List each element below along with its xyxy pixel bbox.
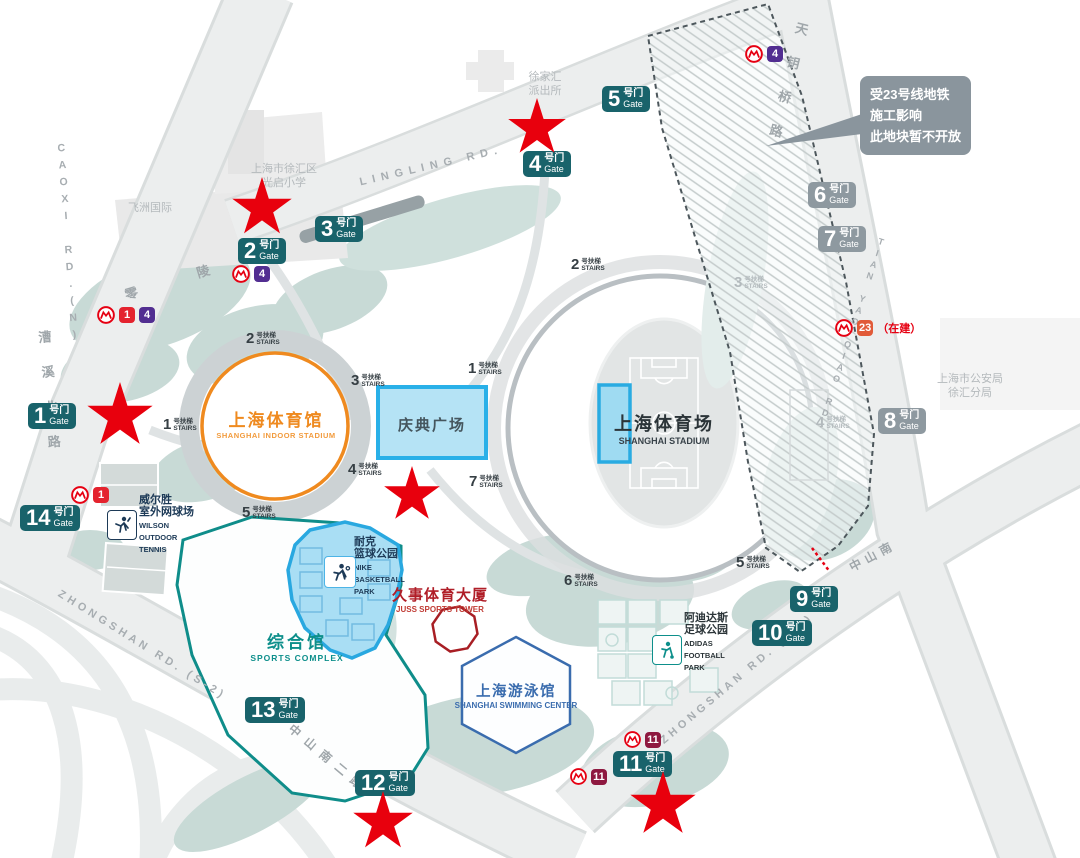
label-juss-tower: 久事体育大厦 JUSS SPORTS TOWER xyxy=(392,584,488,614)
label-complex: 综合馆 SPORTS COMPLEX xyxy=(250,628,343,663)
metro-logo-icon xyxy=(745,45,763,63)
gate-12-badge[interactable]: 12号门Gate xyxy=(355,770,415,796)
stairs-2-indoor: 2号扶梯STAIRS xyxy=(246,330,280,347)
stadium-map: CAOXI RD.(N) 漕溪北路 LINGLING RD. 零陵路 天钥桥路 … xyxy=(0,0,1080,858)
stairs-3-faint: 3号扶梯STAIRS xyxy=(734,274,768,291)
callout-pointer xyxy=(764,108,864,152)
metro-cluster-caoxi: 14 xyxy=(97,306,155,324)
metro-cluster-gate11-b: 11 xyxy=(570,768,607,785)
label-indoor-stadium: 上海体育馆 SHANGHAI INDOOR STADIUM xyxy=(216,406,335,440)
gate-7-badge[interactable]: 7号门Gate xyxy=(818,226,866,252)
metro-logo-icon xyxy=(97,306,115,324)
stairs-4-faint: 4号扶梯STAIRS xyxy=(816,414,850,431)
gate-2-badge[interactable]: 2号门Gate xyxy=(238,238,286,264)
stairs-5-indoor: 5号扶梯STAIRS xyxy=(242,504,276,521)
soccer-player-icon xyxy=(652,635,682,665)
stairs-3: 3号扶梯STAIRS xyxy=(351,372,385,389)
stairs-7: 7号扶梯STAIRS xyxy=(469,473,503,490)
metro-cluster-line23: 23 （在建） xyxy=(835,319,921,337)
gate-3-badge[interactable]: 3号门Gate xyxy=(315,216,363,242)
gate-13-badge[interactable]: 13号门Gate xyxy=(245,697,305,723)
gate-1-badge[interactable]: 1号门Gate xyxy=(28,403,76,429)
label-stadium: 上海体育场 SHANGHAI STADIUM xyxy=(614,410,714,446)
gate-9-badge[interactable]: 9号门Gate xyxy=(790,586,838,612)
metro-logo-icon xyxy=(624,731,641,748)
stairs-5-east: 5号扶梯STAIRS xyxy=(736,554,770,571)
gate-6-badge[interactable]: 6号门Gate xyxy=(808,182,856,208)
label-nike-park: 耐克 篮球公园 NIKE BASKETBALL PARK xyxy=(354,536,405,598)
gate-14-badge[interactable]: 14号门Gate xyxy=(20,505,80,531)
gate-8-badge[interactable]: 8号门Gate xyxy=(878,408,926,434)
label-swimming: 上海游泳馆 SHANGHAI SWIMMING CENTER xyxy=(455,680,578,710)
stairs-4: 4号扶梯STAIRS xyxy=(348,461,382,478)
label-psb: 上海市公安局徐汇分局 xyxy=(925,372,1015,400)
construction-callout: 受23号线地铁 施工影响 此地块暂不开放 xyxy=(860,76,971,155)
under-construction-label: （在建） xyxy=(877,320,921,336)
label-wilson-tennis: 威尔胜 室外网球场 WILSON OUTDOOR TENNIS xyxy=(139,494,194,556)
gate-4-badge[interactable]: 4号门Gate xyxy=(523,151,571,177)
metro-logo-icon xyxy=(570,768,587,785)
label-plaza: 庆典广场 xyxy=(398,414,466,435)
gate-10-badge[interactable]: 10号门Gate xyxy=(752,620,812,646)
basketball-player-icon xyxy=(324,556,356,588)
metro-cluster-gate11-a: 11 xyxy=(624,731,661,748)
metro-logo-icon xyxy=(232,265,250,283)
metro-logo-icon xyxy=(71,486,89,504)
stairs-6: 6号扶梯STAIRS xyxy=(564,572,598,589)
metro-logo-icon xyxy=(835,319,853,337)
label-school: 上海市徐汇区光启小学 xyxy=(238,162,330,190)
label-feizhou: 飞洲国际 xyxy=(128,201,172,215)
metro-cluster-gate14: 1 xyxy=(71,486,109,504)
tennis-player-icon xyxy=(107,510,137,540)
label-police-station: 徐家汇派出所 xyxy=(515,70,575,98)
gate-5-badge[interactable]: 5号门Gate xyxy=(602,86,650,112)
stairs-2-top: 2号扶梯STAIRS xyxy=(571,256,605,273)
metro-cluster-tianyao: 4 xyxy=(745,45,783,63)
stairs-1-west: 1号扶梯STAIRS xyxy=(163,416,197,433)
stairs-1-plaza: 1号扶梯STAIRS xyxy=(468,360,502,377)
label-adidas-park: 阿迪达斯 足球公园 ADIDAS FOOTBALL PARK xyxy=(684,612,728,674)
metro-cluster-gate2: 4 xyxy=(232,265,270,283)
